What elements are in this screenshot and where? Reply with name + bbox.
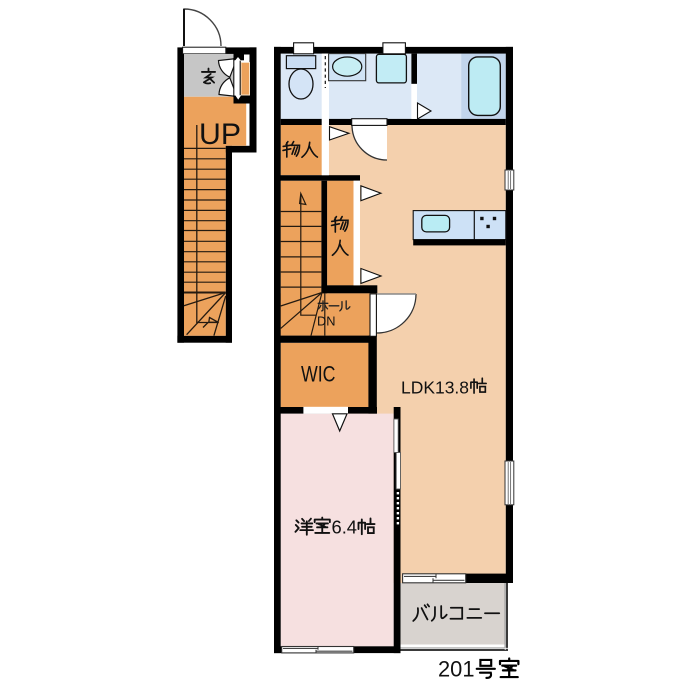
svg-text:LDK13.8: LDK13.8 (401, 378, 469, 398)
svg-text:UP: UP (199, 118, 241, 151)
svg-text:201: 201 (438, 657, 475, 682)
svg-text:WIC: WIC (301, 362, 336, 387)
svg-text:6.4: 6.4 (332, 517, 358, 538)
svg-text:DN: DN (317, 314, 336, 328)
